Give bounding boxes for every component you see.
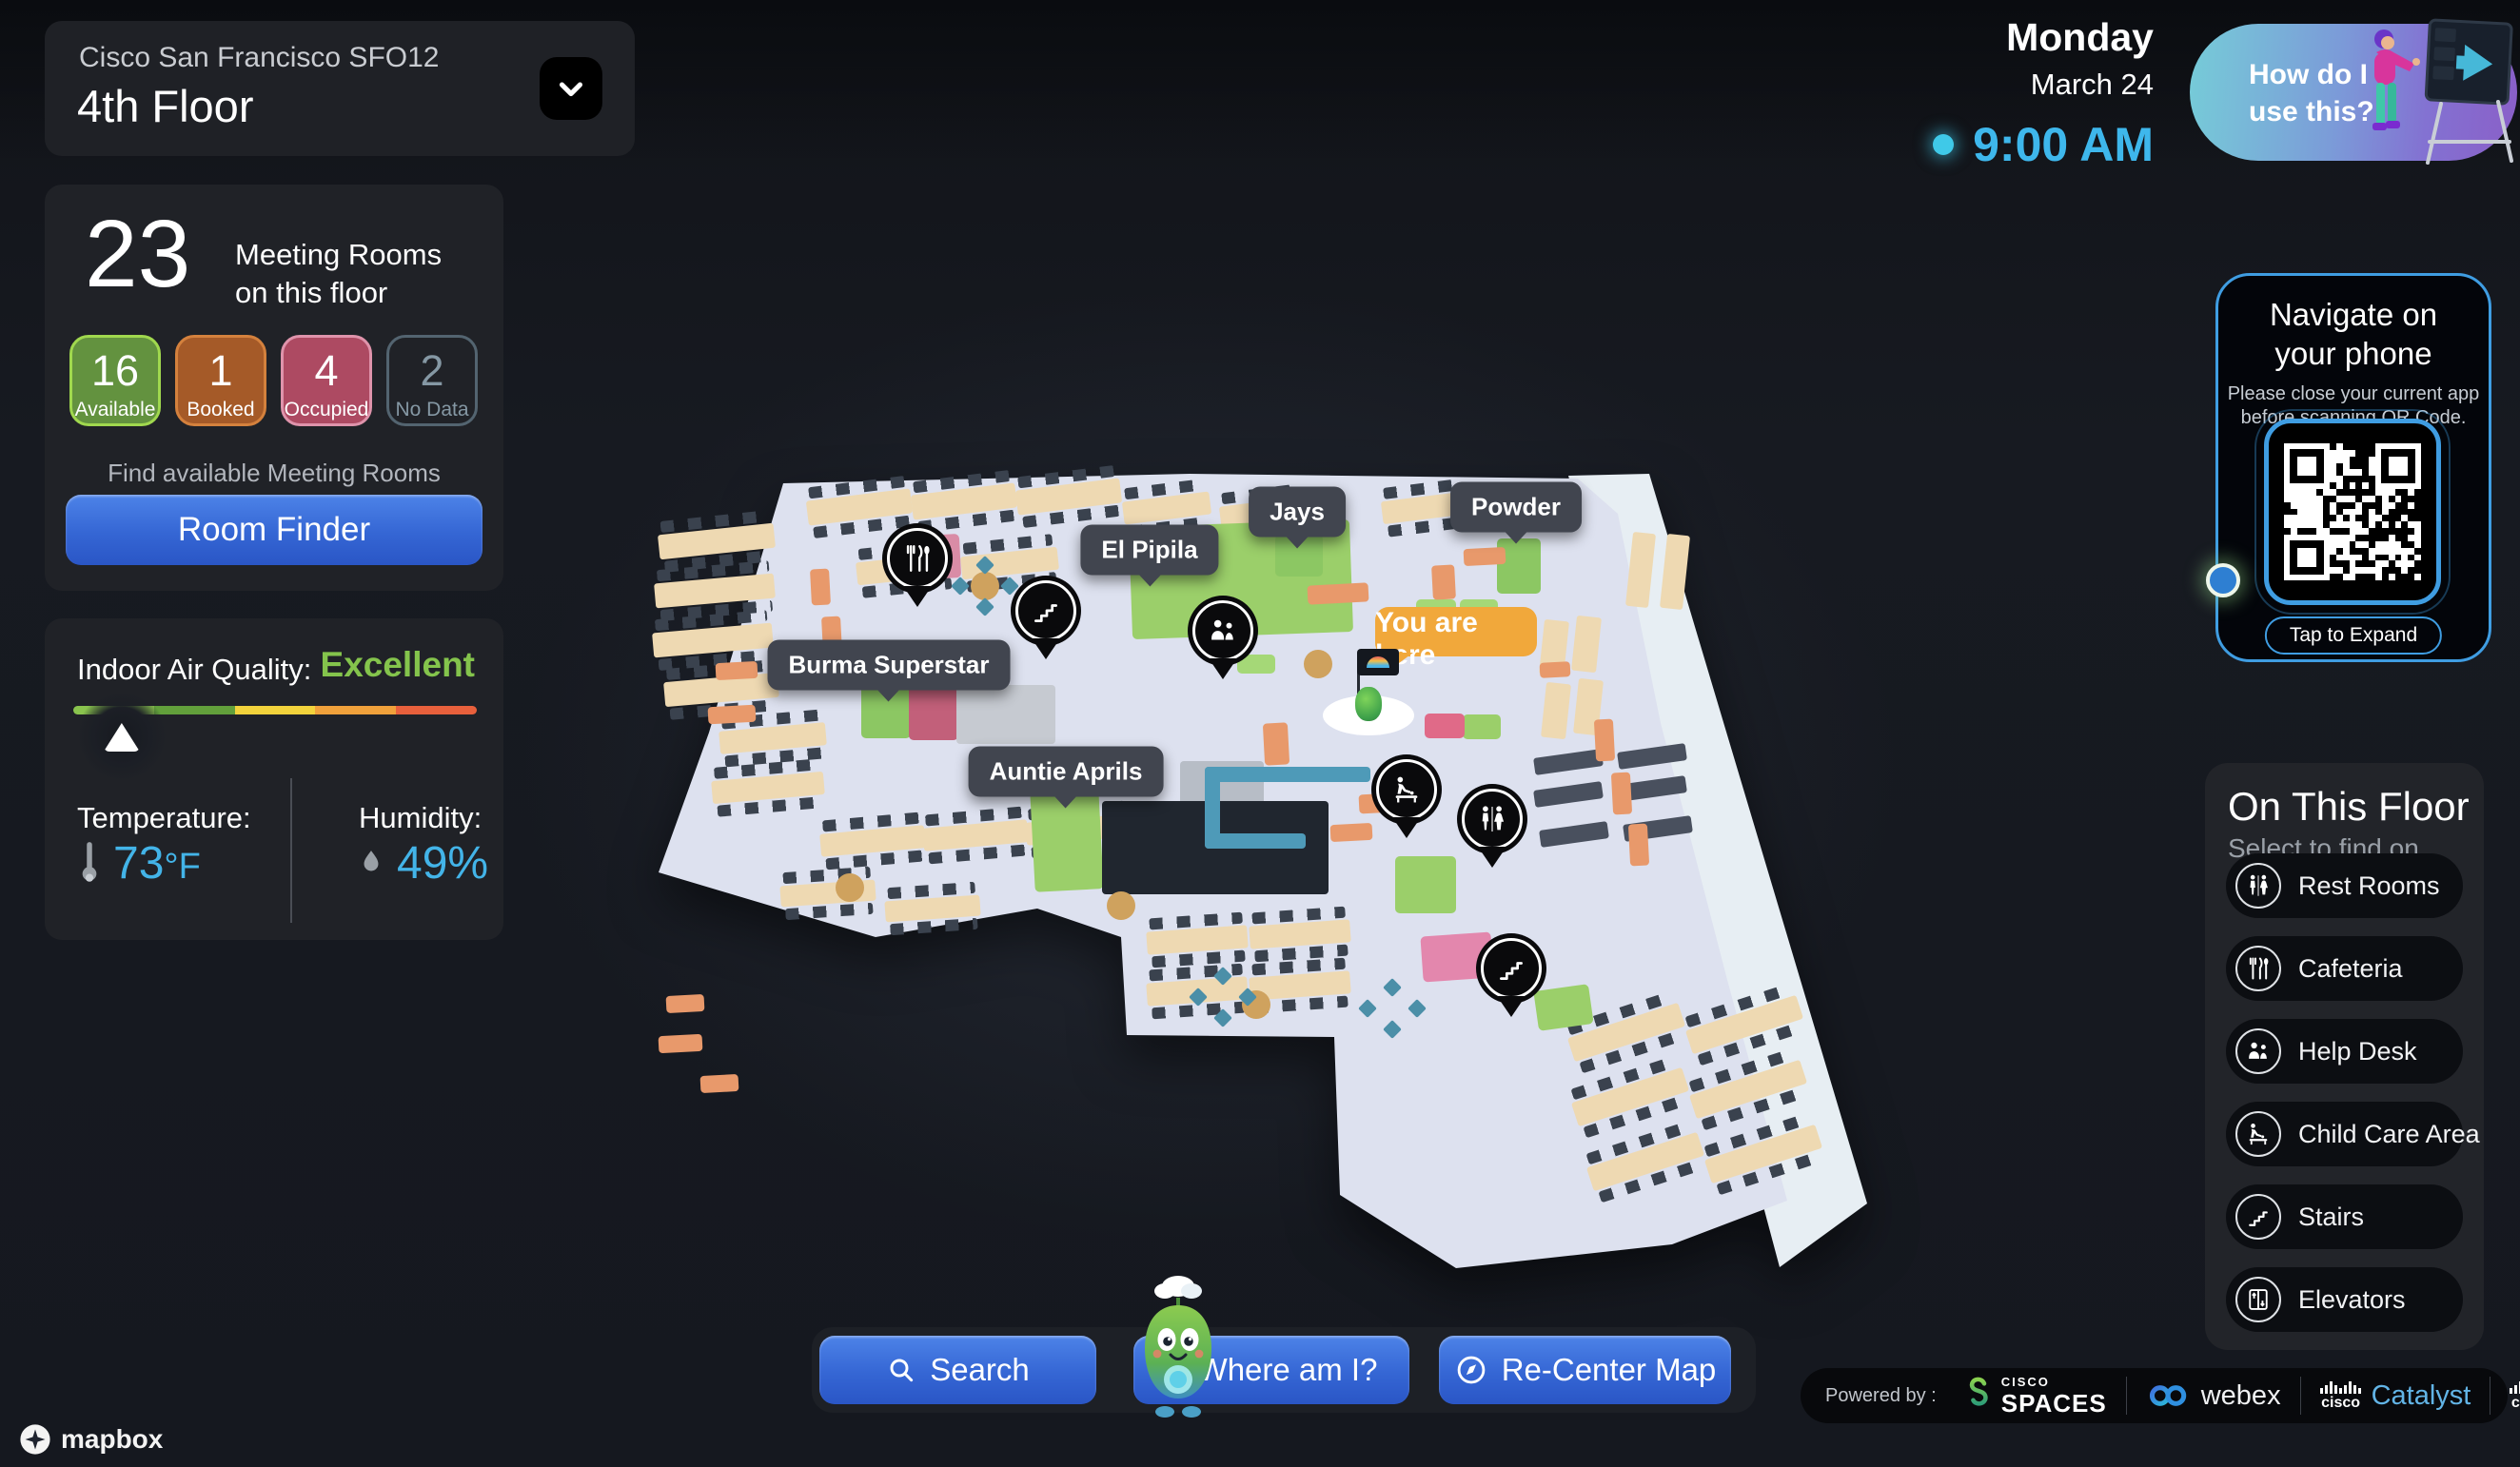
divider	[290, 778, 292, 923]
temperature-value: 73°F	[79, 837, 201, 890]
map-furniture	[1540, 661, 1571, 678]
kiosk-screen: { "header": { "building": "Cisco San Fra…	[0, 0, 2520, 1467]
search-button[interactable]: Search	[819, 1336, 1096, 1404]
humidity-label: Humidity:	[359, 801, 482, 835]
building-name: Cisco San Francisco SFO12	[79, 42, 439, 74]
floor-item-label: Rest Rooms	[2298, 871, 2440, 901]
map-furniture	[700, 1074, 739, 1093]
map-furniture	[1263, 722, 1290, 765]
recenter-map-button[interactable]: Re-Center Map	[1439, 1336, 1731, 1404]
map-furniture	[1594, 719, 1615, 762]
air-quality-panel: Indoor Air Quality: Excellent Temperatur…	[45, 618, 503, 940]
map-furniture	[708, 705, 757, 725]
air-quality-label: Indoor Air Quality:	[77, 653, 311, 687]
room-finder-hint: Find available Meeting Rooms	[45, 459, 503, 488]
map-furniture	[806, 488, 913, 525]
restroom-icon	[1457, 784, 1527, 854]
tap-to-expand-button[interactable]: Tap to Expand	[2265, 616, 2442, 655]
meeting-room-count: 23	[85, 200, 190, 309]
map-furniture	[1586, 1132, 1704, 1191]
powered-by-label: Powered by :	[1825, 1385, 1937, 1407]
floor-selector[interactable]: Cisco San Francisco SFO12 4th Floor	[45, 21, 635, 156]
floor-item-label: Elevators	[2298, 1285, 2406, 1315]
map-furniture	[1704, 1125, 1822, 1183]
time-label: 9:00 AM	[1973, 117, 2154, 172]
map-furniture	[1330, 823, 1373, 842]
map-furniture	[719, 722, 827, 754]
map-furniture	[1408, 999, 1427, 1018]
cisco-meraki-logo: cisco Meraki	[2510, 1380, 2520, 1412]
map-pin-restroom-icon[interactable]	[1457, 784, 1527, 854]
qr-code-frame	[2264, 419, 2441, 605]
elevator-icon	[2235, 1277, 2281, 1322]
map-furniture	[1425, 714, 1465, 738]
help-button-label: How do I use this?	[2249, 56, 2374, 130]
live-time-dot	[1933, 134, 1954, 155]
stairs-icon	[1011, 576, 1081, 646]
map-furniture	[1571, 616, 1602, 673]
map-furniture	[654, 574, 776, 609]
map-label-el-pipila: El Pipila	[1080, 525, 1218, 576]
map-furniture	[1249, 919, 1350, 949]
map-furniture	[1358, 999, 1377, 1018]
compass-icon	[1454, 1353, 1488, 1387]
map-furniture	[716, 661, 758, 680]
chevron-down-icon	[553, 70, 589, 107]
restroom-icon	[2235, 863, 2281, 909]
map-furniture	[1205, 833, 1306, 849]
map-furniture	[1146, 925, 1248, 954]
room-finder-button[interactable]: Room Finder	[66, 495, 482, 565]
map-label-jays: Jays	[1249, 487, 1346, 538]
map-furniture	[658, 523, 776, 560]
room-stat-available: 16Available	[69, 335, 161, 426]
stairs-icon	[1476, 933, 1546, 1004]
floor-item-cafeteria[interactable]: Cafeteria	[2226, 936, 2463, 1001]
meeting-room-title: Meeting Rooms on this floor	[235, 236, 442, 312]
map-furniture	[1660, 534, 1690, 610]
child-care-icon	[2235, 1111, 2281, 1157]
temperature-label: Temperature:	[77, 801, 251, 835]
map-furniture	[1463, 714, 1501, 739]
air-scale-segment	[154, 706, 235, 714]
mapbox-icon	[19, 1423, 51, 1456]
map-furniture	[1533, 749, 1604, 775]
powered-by-bar: Powered by : CISCO SPACES	[1801, 1368, 2508, 1423]
map-furniture	[1539, 821, 1609, 848]
map-furniture	[666, 994, 705, 1013]
map-furniture	[836, 873, 864, 902]
navigate-on-phone-panel: Navigate on your phone Please close your…	[2215, 273, 2491, 662]
map-furniture	[911, 482, 1017, 519]
room-stat-booked: 1Booked	[175, 335, 266, 426]
meeting-rooms-panel: 23 Meeting Rooms on this floor 16Availab…	[45, 185, 503, 591]
air-scale-segment	[396, 706, 477, 714]
map-pin-stairs-icon[interactable]	[1011, 576, 1081, 646]
air-quality-status: Excellent	[321, 645, 475, 685]
thermometer-icon	[79, 840, 100, 888]
room-stat-occupied: 4Occupied	[281, 335, 372, 426]
map-furniture	[1431, 564, 1456, 599]
map-furniture	[956, 685, 1055, 744]
child-care-icon	[1371, 754, 1442, 825]
map-furniture	[1383, 978, 1402, 997]
droplet-icon	[359, 849, 384, 879]
where-am-i-button[interactable]: Where am I?	[1133, 1336, 1409, 1404]
map-furniture	[659, 1034, 703, 1053]
map-furniture	[1625, 532, 1656, 608]
air-scale-segment	[235, 706, 316, 714]
map-furniture	[1464, 547, 1506, 566]
map-furniture	[975, 597, 994, 616]
map-furniture	[1685, 995, 1803, 1054]
room-status-stats: 16Available1Booked4Occupied2No Data	[69, 335, 478, 426]
map-pin-help-desk-icon[interactable]	[1188, 596, 1258, 666]
map-label-burma-superstar: Burma Superstar	[768, 640, 1011, 691]
search-icon	[886, 1355, 916, 1385]
divider	[2490, 1377, 2490, 1415]
qr-code	[2284, 443, 2421, 580]
day-label: Monday	[1933, 15, 2154, 60]
webex-icon	[2146, 1381, 2192, 1410]
spaces-s-icon	[1961, 1374, 1992, 1418]
you-are-here-marker	[1355, 687, 1382, 721]
map-furniture	[819, 825, 926, 856]
map-furniture	[1107, 891, 1135, 920]
datetime-block: Monday March 24 9:00 AM	[1933, 15, 2154, 172]
map-furniture	[1205, 767, 1370, 782]
map-furniture	[1122, 491, 1211, 524]
map-furniture	[951, 577, 970, 596]
floor-name: 4th Floor	[77, 80, 253, 132]
map-furniture	[922, 819, 1029, 851]
cisco-bars-icon	[2510, 1380, 2520, 1394]
map-label-powder: Powder	[1450, 482, 1582, 533]
map-furniture	[971, 572, 999, 600]
cisco-catalyst-logo: cisco Catalyst	[2320, 1380, 2471, 1412]
map-furniture	[1617, 743, 1687, 770]
map-furniture	[1383, 1020, 1402, 1039]
help-desk-icon	[2235, 1028, 2281, 1074]
cafeteria-icon	[2235, 946, 2281, 991]
cisco-bars-icon	[2320, 1380, 2362, 1394]
on-this-floor-panel: On This Floor Select to find on map: Res…	[2205, 763, 2484, 1350]
floor-item-stairs[interactable]: Stairs	[2226, 1184, 2463, 1249]
map-furniture	[711, 772, 825, 804]
map-furniture	[1395, 856, 1456, 913]
map-furniture	[1611, 773, 1632, 815]
cisco-spaces-logo: CISCO SPACES	[1961, 1374, 2107, 1418]
stairs-icon	[2235, 1194, 2281, 1240]
floor-item-child-care-area[interactable]: Child Care Area	[2226, 1102, 2463, 1166]
floor-item-rest-rooms[interactable]: Rest Rooms	[2226, 853, 2463, 918]
map-pin-cafeteria-icon[interactable]	[882, 523, 953, 594]
mapbox-attribution[interactable]: mapbox	[19, 1423, 163, 1456]
map-furniture	[1689, 1060, 1807, 1119]
floor-item-label: Stairs	[2298, 1203, 2364, 1232]
divider	[2126, 1377, 2127, 1415]
floor-item-label: Cafeteria	[2298, 954, 2403, 984]
date-label: March 24	[1933, 68, 2154, 102]
room-stat-no-data: 2No Data	[386, 335, 478, 426]
floor-item-label: Child Care Area	[2298, 1120, 2480, 1149]
map-furniture	[810, 569, 831, 606]
map-furniture	[1541, 682, 1571, 739]
map-furniture	[1308, 582, 1369, 604]
marker-part	[1357, 649, 1399, 675]
floor-item-help-desk[interactable]: Help Desk	[2226, 1019, 2463, 1084]
map-pin-child-care-icon[interactable]	[1371, 754, 1442, 825]
beacon-dot	[2206, 563, 2240, 597]
map-furniture	[1304, 650, 1332, 678]
map-furniture	[1015, 478, 1122, 515]
map-furniture	[1277, 582, 1311, 611]
floor-dropdown-button[interactable]	[540, 57, 602, 120]
map-furniture	[884, 895, 980, 923]
you-are-here-callout: You are here	[1375, 607, 1537, 656]
floor-item-elevators[interactable]: Elevators	[2226, 1267, 2463, 1332]
humidity-value: 49%	[359, 837, 488, 890]
on-this-floor-title: On This Floor	[2228, 784, 2470, 830]
air-scale-segment	[315, 706, 396, 714]
map-furniture	[909, 685, 958, 740]
map-furniture	[652, 623, 774, 658]
map-furniture	[1533, 781, 1604, 808]
qr-panel-title: Navigate on your phone	[2218, 295, 2489, 373]
map-furniture	[1628, 824, 1649, 867]
map-furniture	[1571, 1067, 1689, 1126]
help-desk-icon	[1188, 596, 1258, 666]
how-do-i-use-this-button[interactable]: How do I use this?	[2190, 24, 2517, 161]
floor-item-label: Help Desk	[2298, 1037, 2417, 1066]
map-pin-stairs-icon[interactable]	[1476, 933, 1546, 1004]
divider	[2300, 1377, 2301, 1415]
cafeteria-icon	[882, 523, 953, 594]
webex-logo: webex	[2146, 1380, 2281, 1412]
bottom-action-bar: Search Where am I? Re-Center Map	[812, 1327, 1756, 1413]
map-label-auntie-aprils: Auntie Aprils	[969, 747, 1164, 797]
